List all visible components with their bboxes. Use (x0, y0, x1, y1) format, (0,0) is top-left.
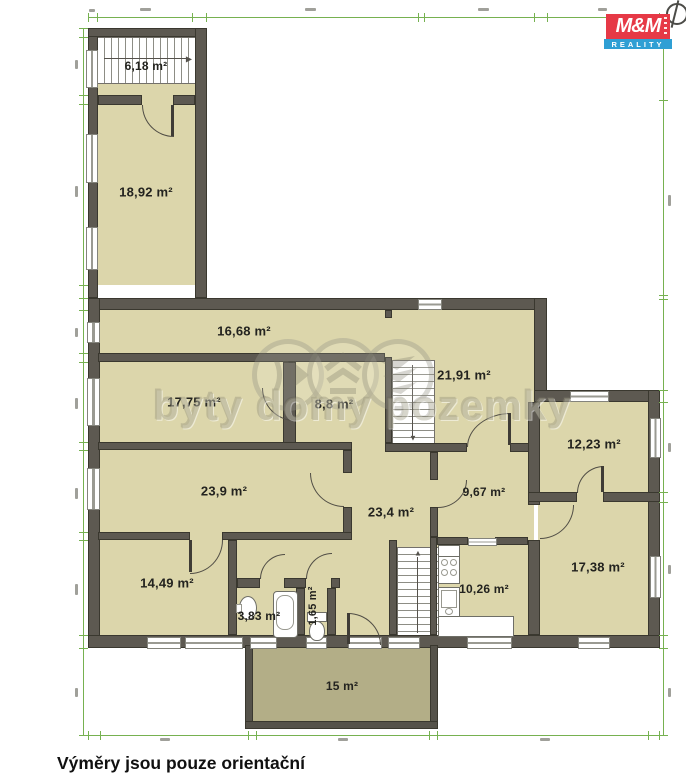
wall (195, 28, 207, 298)
window (86, 227, 98, 270)
room-area-label: 23,9 m² (201, 484, 247, 499)
dimension-line-top (88, 17, 660, 18)
wall (430, 452, 438, 480)
wall (88, 28, 207, 37)
wall (331, 578, 340, 588)
wall (98, 353, 385, 362)
room-area-label: 10,26 m² (459, 582, 509, 596)
brand-logo-text: M&M (616, 15, 661, 38)
wall (389, 540, 397, 635)
wall (228, 540, 237, 635)
wall (88, 298, 547, 310)
dim-tick (429, 731, 430, 740)
terrace-wall (245, 645, 253, 728)
dim-tick (97, 13, 98, 22)
dim-tick (79, 362, 88, 363)
door-leaf (189, 540, 192, 572)
dim-number (140, 8, 151, 11)
wall (430, 537, 437, 635)
wall (437, 537, 468, 545)
door-leaf (601, 466, 604, 492)
door-leaf (171, 105, 174, 136)
room-area-label: 16,68 m² (217, 324, 271, 339)
burner (441, 569, 448, 576)
dim-number (75, 60, 78, 69)
dim-number (160, 738, 170, 741)
dim-tick (659, 100, 668, 101)
dim-tick (659, 492, 668, 493)
wall (173, 95, 195, 105)
dim-number (668, 688, 671, 697)
window (650, 556, 661, 598)
dim-tick (659, 402, 668, 403)
wall (222, 532, 352, 540)
dim-number (540, 738, 550, 741)
door-leaf (347, 613, 350, 644)
wall (385, 357, 392, 443)
room-area-label: 15 m² (326, 679, 358, 693)
stair-arrow-right: ▶ (186, 55, 192, 64)
window (86, 50, 98, 88)
terrace-wall (430, 645, 438, 728)
wall (528, 402, 540, 505)
wall (98, 442, 352, 450)
dim-number (668, 443, 671, 452)
dim-tick (79, 37, 88, 38)
dim-number (338, 738, 348, 741)
wall (495, 537, 528, 545)
dim-tick (79, 540, 88, 541)
dim-tick (79, 532, 88, 533)
wall (327, 588, 336, 635)
room-area-label: 8,8 m² (315, 397, 354, 412)
stair-direction-line (417, 557, 418, 633)
brand-logo-mm: M&M (606, 14, 670, 39)
window (147, 637, 181, 649)
dim-tick (659, 502, 668, 503)
dimension-line-bottom (83, 735, 664, 736)
window (650, 418, 661, 458)
cased-opening (468, 538, 497, 546)
window (418, 299, 442, 310)
dim-number (75, 186, 78, 197)
dim-number (305, 8, 316, 11)
dim-number (598, 8, 607, 11)
kitchen-counter (438, 616, 514, 637)
window (388, 637, 420, 649)
wall (528, 540, 540, 635)
wall (237, 578, 260, 588)
staircase-upper (392, 360, 435, 445)
room-area-label: 6,18 m² (125, 59, 168, 73)
dim-tick (88, 731, 89, 740)
burner (450, 559, 457, 566)
dim-number (75, 488, 78, 499)
wall (385, 310, 392, 318)
dim-tick (659, 635, 668, 636)
room-area-label: 14,49 m² (140, 576, 194, 591)
dim-tick (206, 13, 207, 22)
dim-tick (100, 731, 101, 740)
dim-tick (659, 299, 668, 300)
wall (534, 298, 547, 402)
dim-tick (418, 13, 419, 22)
room-area-label: 21,91 m² (437, 368, 491, 383)
room-area-label: 23,4 m² (368, 505, 414, 520)
wall (98, 532, 190, 540)
dim-tick (256, 731, 257, 740)
window (87, 468, 100, 510)
wall (343, 450, 352, 473)
dim-number (75, 688, 78, 697)
dim-tick (659, 390, 668, 391)
wall (603, 492, 660, 502)
room-area-label: 12,23 m² (567, 437, 621, 452)
dim-tick (424, 13, 425, 22)
dim-tick (79, 104, 88, 105)
room-area-label: 3,83 m² (238, 609, 281, 623)
dim-number (478, 8, 489, 11)
dim-tick (79, 298, 88, 299)
window (185, 637, 243, 649)
wall (385, 443, 467, 452)
dim-number (75, 398, 78, 409)
dim-tick (192, 13, 193, 22)
stair-direction-line (412, 365, 413, 437)
dimension-line-left (83, 28, 84, 735)
kitchen-sink-tap (445, 608, 453, 615)
dim-number (75, 328, 78, 337)
room-area-label: 18,92 m² (119, 185, 173, 200)
dim-number (75, 584, 78, 595)
dim-tick (79, 353, 88, 354)
window (87, 322, 100, 343)
window (87, 378, 100, 426)
dim-tick (79, 635, 88, 636)
brand-logo-subtext: REALITY (611, 40, 664, 49)
room-area-label: 17,75 m² (167, 395, 221, 410)
brand-logo-reality: REALITY (604, 39, 672, 49)
room-area-label: 9,67 m² (463, 485, 506, 499)
dim-tick (659, 648, 668, 649)
dimension-line-right (663, 48, 664, 735)
dim-tick (534, 13, 535, 22)
stair-arrow-down: ▼ (409, 434, 417, 443)
kitchen-sink-basin (441, 590, 457, 608)
dim-tick (79, 442, 88, 443)
dim-tick (437, 731, 438, 740)
door-leaf (508, 413, 511, 445)
room-area-label: 17,38 m² (571, 560, 625, 575)
room-area-label: 1,65 m² (307, 586, 319, 625)
burner (450, 569, 457, 576)
brand-logo-side-marks (664, 17, 667, 36)
window (86, 134, 98, 183)
dim-tick (79, 450, 88, 451)
wall (284, 578, 306, 588)
dim-tick (79, 28, 88, 29)
window (578, 637, 610, 649)
dim-tick (79, 310, 88, 311)
dim-number (668, 195, 671, 206)
dim-tick (79, 648, 88, 649)
dim-tick (659, 295, 668, 296)
caption-text: Výměry jsou pouze orientační (57, 753, 305, 774)
wall (430, 507, 438, 537)
dim-tick (648, 731, 649, 740)
dim-tick (659, 731, 660, 740)
window (467, 637, 512, 649)
dim-tick (248, 731, 249, 740)
terrace-wall (245, 721, 438, 729)
stair-arrow-up: ▲ (414, 549, 422, 558)
dim-tick (79, 95, 88, 96)
floor-plan: ▶ ▼ ▲ (0, 0, 686, 781)
window (250, 637, 277, 649)
dim-number (89, 9, 95, 12)
wall (98, 95, 142, 105)
wall (528, 492, 577, 502)
dim-number (668, 565, 671, 574)
window (570, 391, 609, 402)
dim-tick (547, 13, 548, 22)
dim-tick (88, 13, 89, 22)
dim-tick (79, 285, 88, 286)
burner (441, 559, 448, 566)
